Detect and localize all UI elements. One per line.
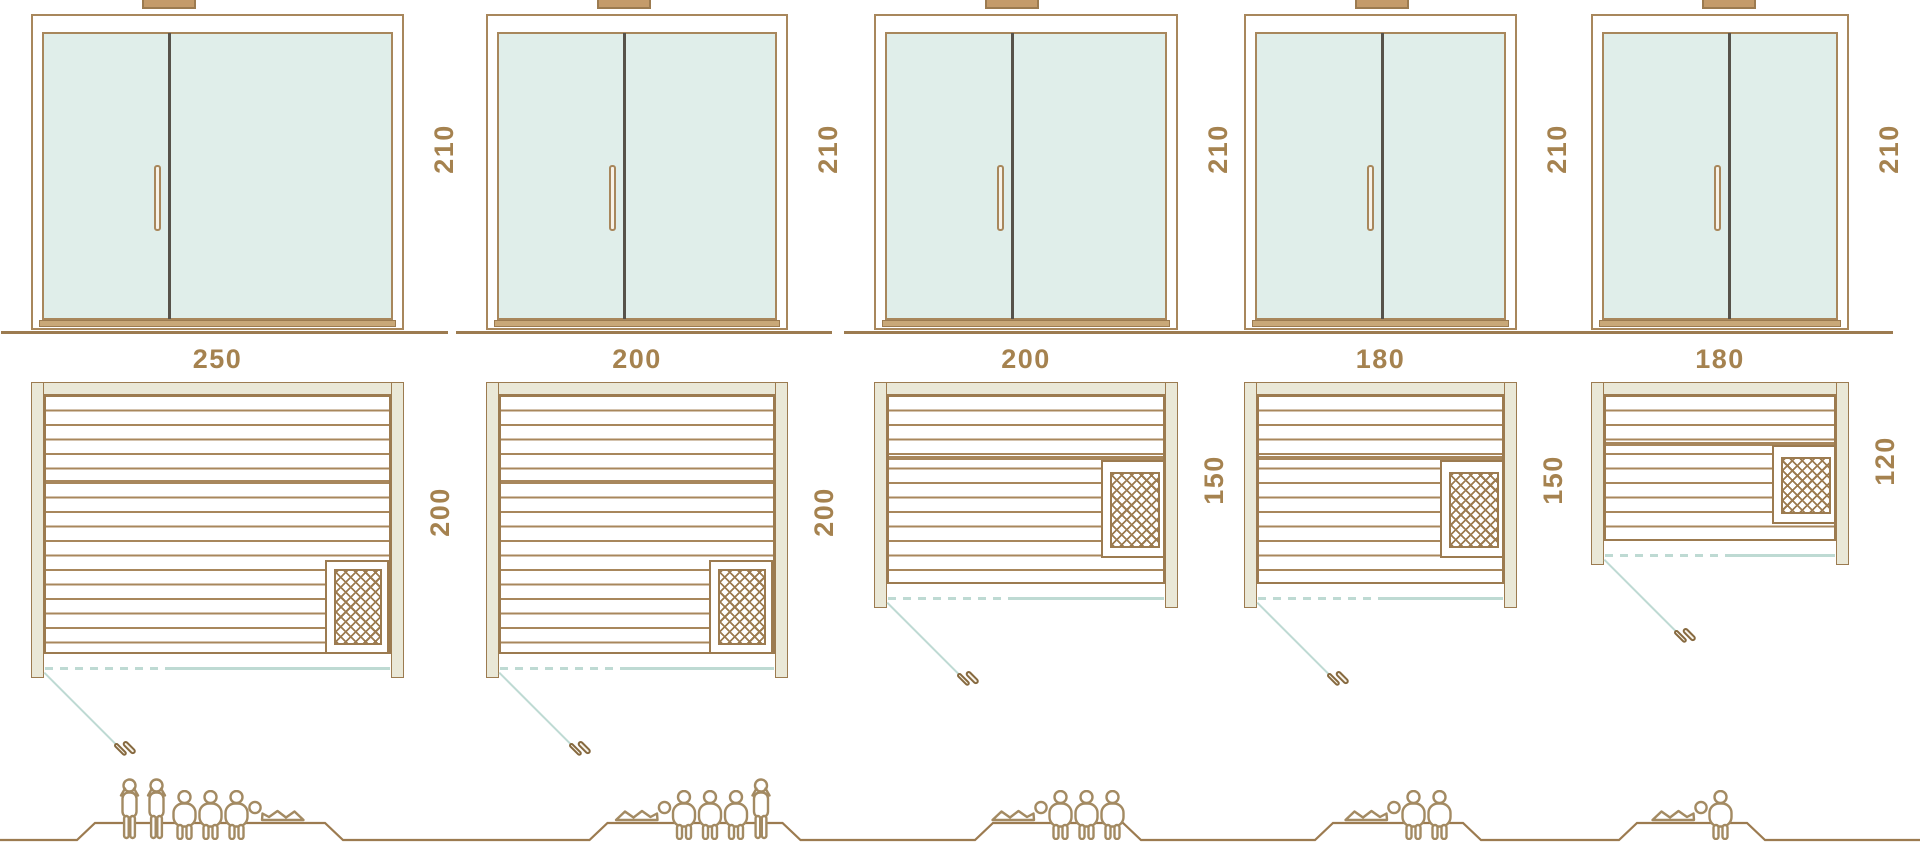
glass-front-fixed-panel [620, 667, 774, 670]
door-elevation: 210 [486, 0, 788, 340]
door-swing-line [1256, 602, 1337, 683]
glass-front-door-opening [500, 667, 620, 670]
capacity-figures-row [0, 740, 1920, 856]
door-handle-icon [154, 165, 161, 231]
heater-icon [1781, 457, 1831, 514]
heater-icon [1449, 472, 1499, 548]
person-standing-icon [753, 780, 770, 839]
bench-edge-line [889, 456, 1163, 460]
glass-front-fixed-panel [1725, 554, 1835, 557]
door-sill [494, 320, 780, 327]
door-elevation: 210 [1591, 0, 1849, 340]
roof-vent-icon [1355, 0, 1409, 9]
elevation-ground-line [1214, 331, 1561, 334]
person-seated-icon [1710, 791, 1732, 839]
glass-front-door-opening [888, 597, 1008, 600]
floor-plan: 120 [1591, 382, 1849, 677]
plan-wall-right [1165, 382, 1178, 608]
person-seated-icon [1050, 791, 1072, 839]
ground-line [0, 823, 1920, 840]
capacity-group-6-persons [121, 780, 304, 840]
heater-icon [334, 569, 382, 645]
door-divider [1011, 33, 1014, 319]
person-seated-icon [725, 791, 747, 839]
depth-label: 200 [423, 482, 457, 542]
plan-wall-top [486, 382, 788, 395]
door-divider [623, 33, 626, 319]
width-label: 200 [486, 342, 788, 376]
door-glass [42, 32, 393, 320]
width-label: 180 [1591, 342, 1849, 376]
heater-guard [1440, 460, 1504, 558]
door-swing-line [886, 602, 967, 683]
elevation-ground-line [1561, 331, 1893, 334]
door-elevation: 210 [874, 0, 1178, 340]
door-divider [1381, 33, 1384, 319]
width-label: 180 [1244, 342, 1517, 376]
floor-plan: 150 [874, 382, 1178, 720]
plan-wall-top [31, 382, 404, 395]
door-divider [168, 33, 171, 319]
glass-front-door-opening [45, 667, 165, 670]
door-handle-icon [1714, 165, 1721, 231]
bench-edge-line [46, 480, 389, 484]
person-lying-icon [1653, 802, 1707, 820]
height-label: 210 [1540, 119, 1574, 179]
plan-wall-right [1504, 382, 1517, 608]
roof-vent-icon [142, 0, 196, 9]
glass-front-door-opening [1605, 554, 1725, 557]
depth-label: 200 [807, 482, 841, 542]
plan-wall-right [391, 382, 404, 678]
door-elevation: 210 [1244, 0, 1517, 340]
depth-label: 120 [1868, 431, 1902, 491]
roof-vent-icon [597, 0, 651, 9]
person-lying-icon [993, 802, 1047, 820]
depth-label: 150 [1536, 450, 1570, 510]
person-lying-icon [249, 802, 303, 820]
person-standing-icon [121, 780, 138, 839]
elevation-ground-line [1, 331, 448, 334]
plan-wall-right [1836, 382, 1849, 565]
heater-icon [1110, 472, 1160, 548]
person-seated-icon [1076, 791, 1098, 839]
capacity-group-3-persons [1346, 791, 1451, 839]
capacity-group-2-persons [1653, 791, 1732, 839]
person-lying-icon [616, 802, 670, 820]
width-label: 250 [31, 342, 404, 376]
person-lying-icon [1346, 802, 1400, 820]
roof-vent-icon [985, 0, 1039, 9]
sauna-column-sauna-180x120: 210180120 [1591, 0, 1849, 856]
floor-plan: 150 [1244, 382, 1517, 720]
height-label: 210 [1201, 119, 1235, 179]
sauna-column-sauna-200x200: 210200200 [486, 0, 788, 856]
elevation-ground-line [456, 331, 832, 334]
door-glass [885, 32, 1167, 320]
door-swing-line [1603, 559, 1684, 640]
plan-wall-left [486, 382, 499, 678]
heater-guard [1772, 445, 1836, 524]
person-seated-icon [200, 791, 222, 839]
height-label: 210 [1872, 119, 1906, 179]
height-label: 210 [427, 119, 461, 179]
door-handle-icon [609, 165, 616, 231]
person-standing-icon [148, 780, 165, 839]
sauna-column-sauna-200x150: 210200150 [874, 0, 1178, 856]
person-seated-icon [699, 791, 721, 839]
floor-plan: 200 [486, 382, 788, 790]
glass-front-fixed-panel [165, 667, 390, 670]
heater-guard [709, 560, 773, 654]
door-swing-handle-icon [1325, 666, 1350, 691]
glass-front-fixed-panel [1008, 597, 1164, 600]
elevation-ground-line [844, 331, 1222, 334]
bench-edge-line [1259, 456, 1502, 460]
glass-front-door-opening [1258, 597, 1378, 600]
door-sill [39, 320, 396, 327]
width-label: 200 [874, 342, 1178, 376]
plan-wall-top [874, 382, 1178, 395]
sauna-size-diagram: 2102502002102002002102001502101801502101… [0, 0, 1920, 856]
capacity-group-5-persons [616, 780, 770, 840]
door-swing-handle-icon [955, 666, 980, 691]
person-seated-icon [673, 791, 695, 839]
door-handle-icon [997, 165, 1004, 231]
plan-wall-left [1591, 382, 1604, 565]
plan-wall-left [1244, 382, 1257, 608]
heater-icon [718, 569, 766, 645]
height-label: 210 [811, 119, 845, 179]
door-handle-icon [1367, 165, 1374, 231]
capacity-group-4-persons [993, 791, 1124, 839]
heater-guard [325, 560, 389, 654]
person-seated-icon [174, 791, 196, 839]
plan-wall-left [874, 382, 887, 608]
door-sill [1252, 320, 1509, 327]
depth-label: 150 [1197, 450, 1231, 510]
door-swing-handle-icon [1672, 623, 1697, 648]
plan-wall-right [775, 382, 788, 678]
person-seated-icon [1102, 791, 1124, 839]
person-seated-icon [1429, 791, 1451, 839]
sauna-column-sauna-250x200: 210250200 [31, 0, 404, 856]
door-glass [497, 32, 777, 320]
plan-wall-top [1591, 382, 1849, 395]
bench-edge-line [501, 480, 773, 484]
person-seated-icon [1403, 791, 1425, 839]
door-sill [1599, 320, 1841, 327]
glass-front-fixed-panel [1378, 597, 1503, 600]
heater-guard [1101, 460, 1165, 558]
door-sill [882, 320, 1170, 327]
person-seated-icon [226, 791, 248, 839]
door-elevation: 210 [31, 0, 404, 340]
plan-wall-left [31, 382, 44, 678]
door-divider [1728, 33, 1731, 319]
plan-wall-top [1244, 382, 1517, 395]
roof-vent-icon [1702, 0, 1756, 9]
floor-plan: 200 [31, 382, 404, 790]
sauna-column-sauna-180x150: 210180150 [1244, 0, 1517, 856]
